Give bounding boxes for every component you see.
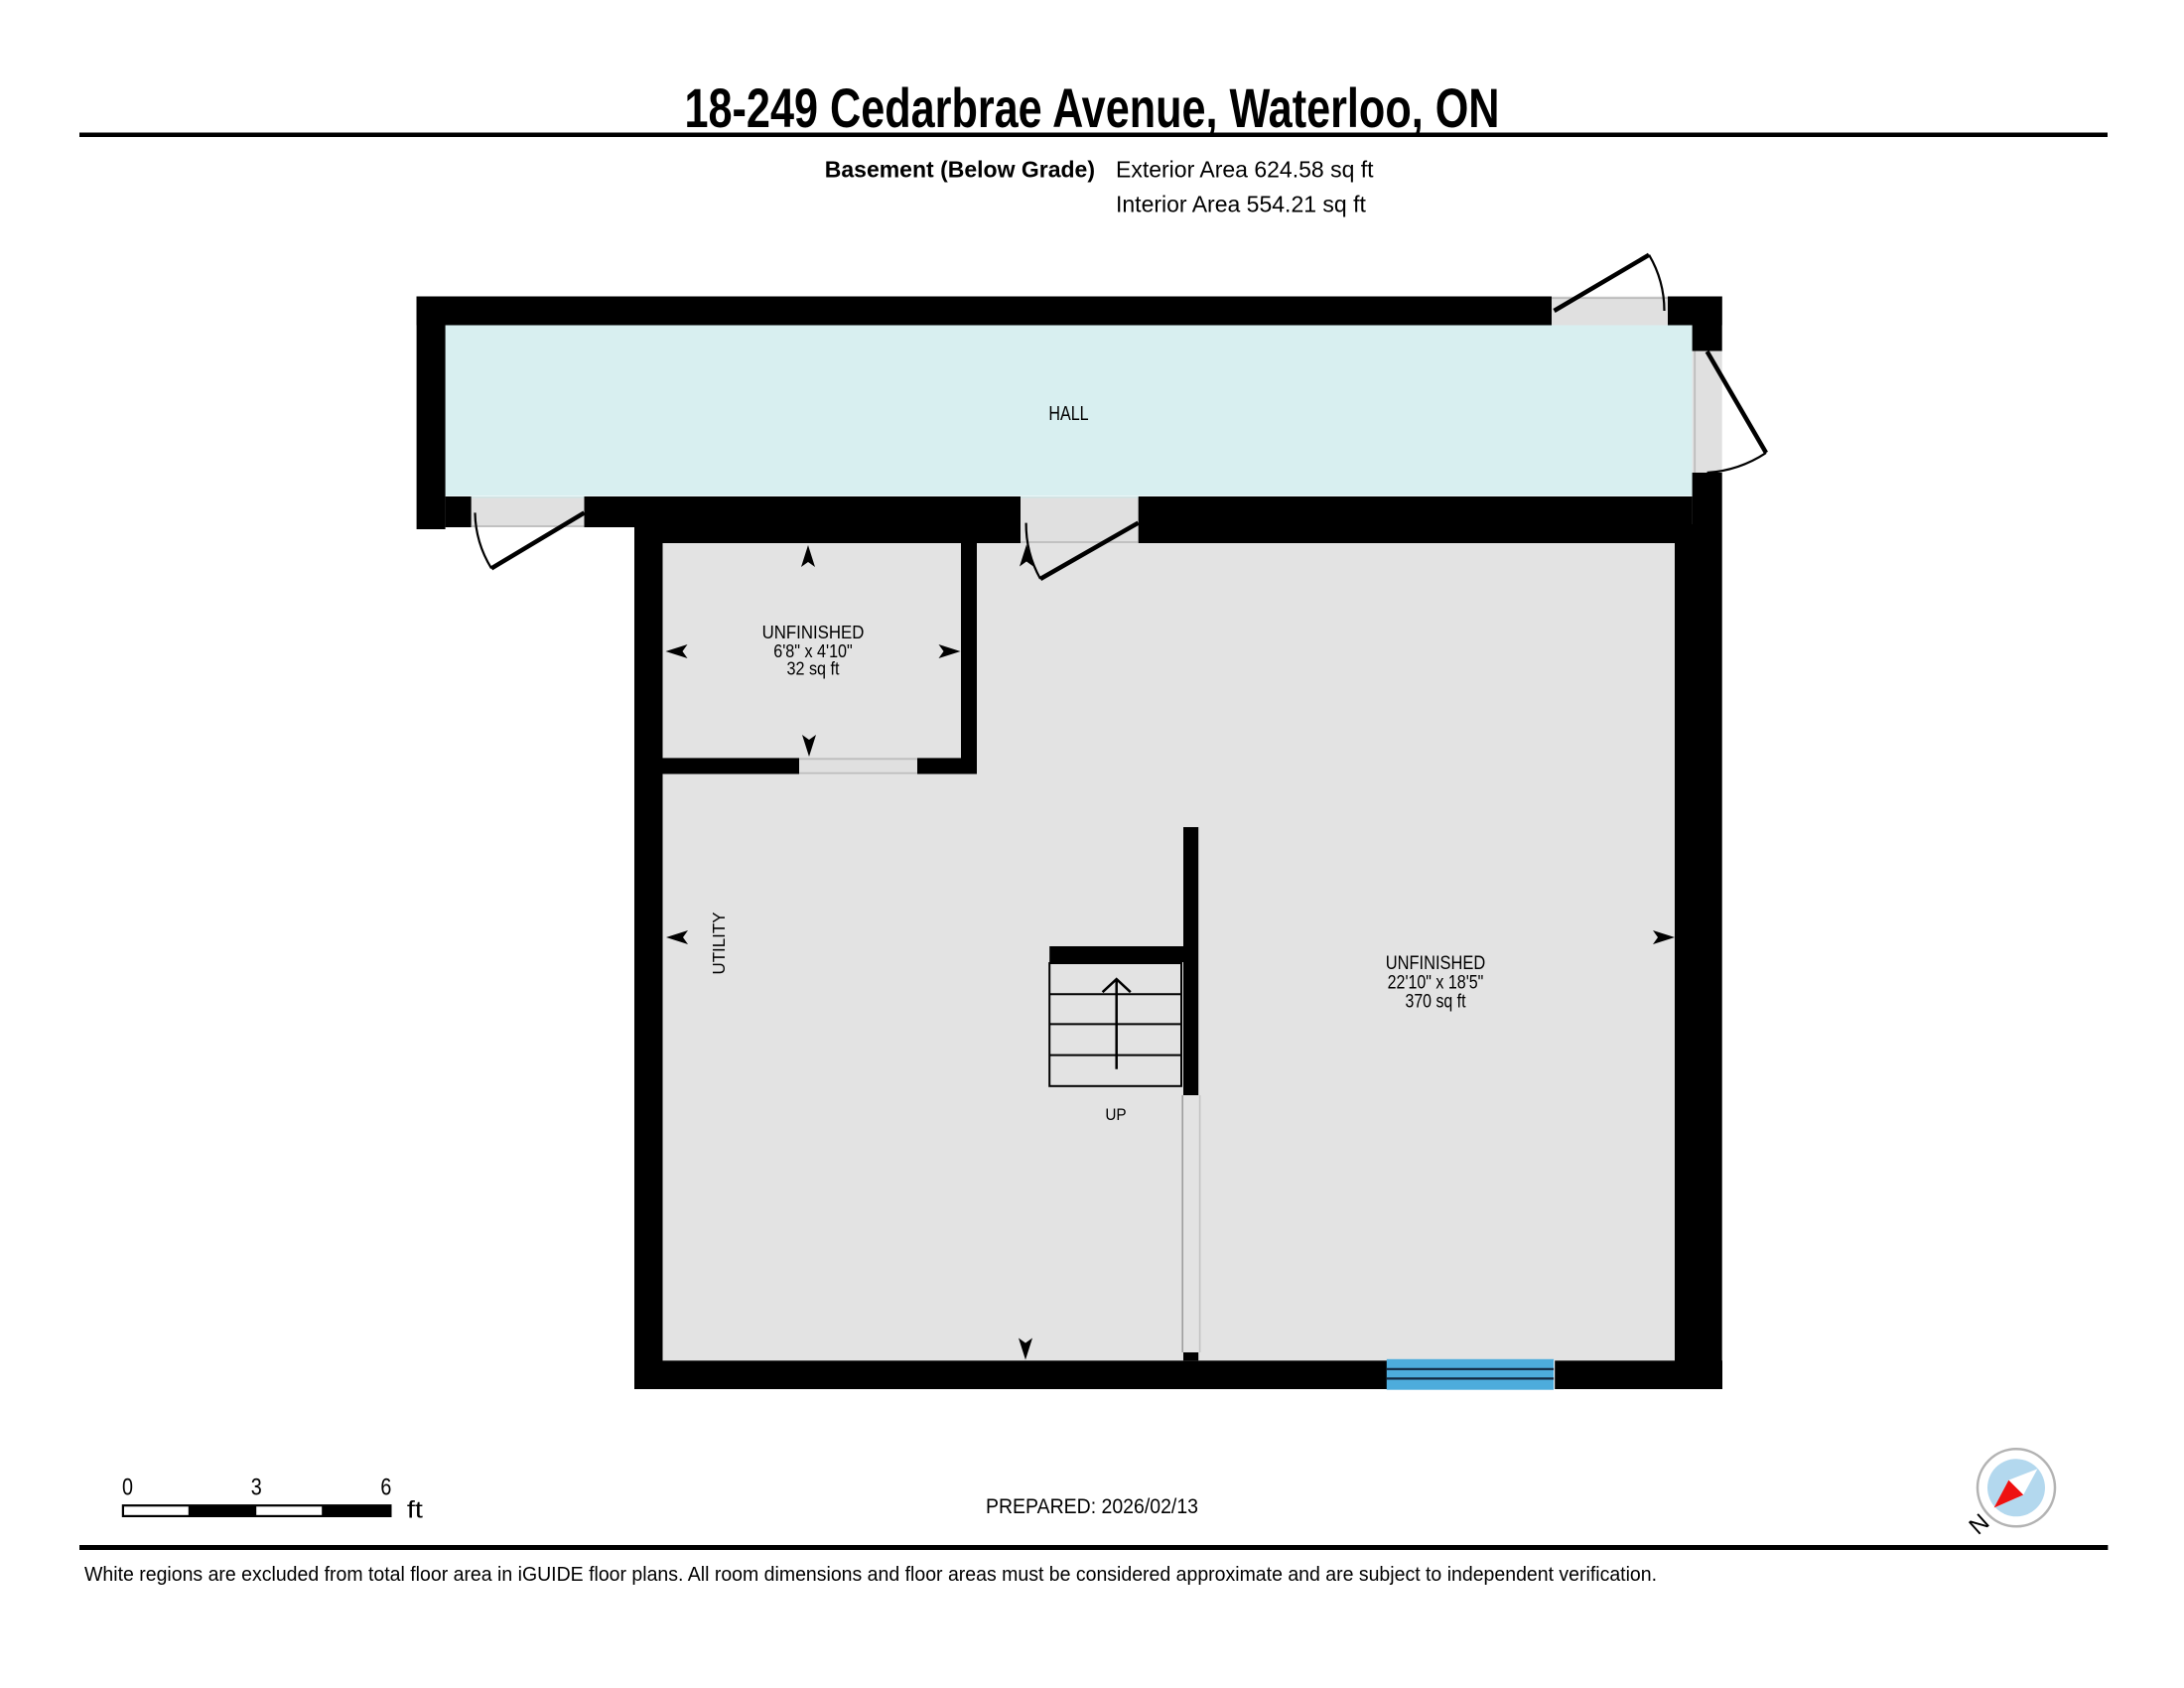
svg-text:18-249 Cedarbrae Avenue, Water: 18-249 Cedarbrae Avenue, Waterloo, ON: [685, 76, 1500, 139]
svg-text:Interior Area 554.21 sq ft: Interior Area 554.21 sq ft: [1116, 192, 1366, 217]
svg-text:0: 0: [122, 1474, 133, 1500]
svg-text:White regions are excluded fro: White regions are excluded from total fl…: [84, 1563, 1657, 1586]
svg-text:3: 3: [251, 1474, 262, 1500]
svg-text:6: 6: [380, 1474, 391, 1500]
svg-text:ft: ft: [407, 1497, 423, 1524]
svg-text:370 sq ft: 370 sq ft: [1406, 992, 1467, 1013]
svg-text:UNFINISHED: UNFINISHED: [1386, 953, 1486, 974]
svg-text:HALL: HALL: [1048, 402, 1088, 425]
svg-text:UTILITY: UTILITY: [709, 912, 729, 974]
svg-text:32 sq ft: 32 sq ft: [787, 657, 840, 678]
svg-text:UP: UP: [1105, 1105, 1126, 1124]
svg-text:Basement (Below Grade): Basement (Below Grade): [825, 157, 1095, 183]
svg-text:Exterior Area 624.58 sq ft: Exterior Area 624.58 sq ft: [1116, 157, 1374, 183]
svg-text:PREPARED: 2026/02/13: PREPARED: 2026/02/13: [986, 1494, 1198, 1518]
svg-text:22'10" x 18'5": 22'10" x 18'5": [1388, 972, 1484, 993]
